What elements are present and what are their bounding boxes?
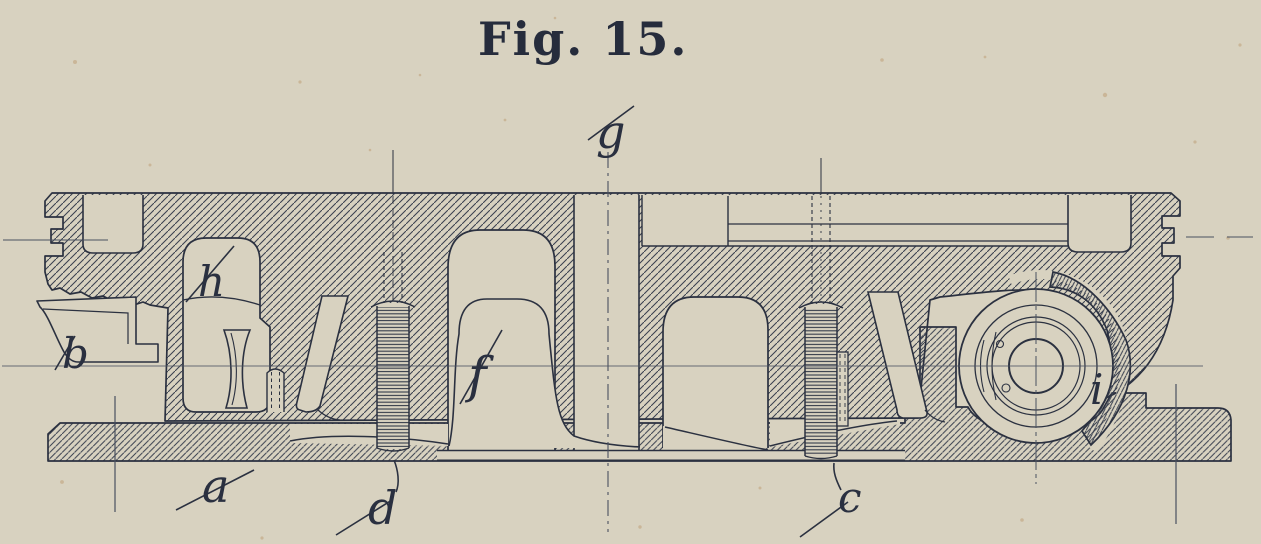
part-label-d: d [368, 481, 397, 535]
part-label-i: i [1090, 365, 1103, 414]
left-top-notch [83, 195, 143, 253]
h-cavity [183, 238, 270, 412]
bearing-assembly [959, 272, 1130, 450]
figure-title: Fig. 15. [478, 12, 688, 66]
gib-strip-band [642, 195, 1068, 246]
b-gib-piece [37, 297, 158, 362]
scanned-figure-page: Fig. 15. g h b f a d c i [0, 0, 1261, 544]
slot-g [574, 195, 639, 452]
right-portal [663, 297, 768, 448]
right-top-notch [1068, 195, 1131, 252]
gib-slot [837, 352, 848, 426]
figure-15-drawing: Fig. 15. g h b f a d c i [0, 0, 1261, 544]
part-label-h: h [198, 257, 225, 306]
part-label-g: g [596, 105, 625, 159]
part-label-b: b [62, 329, 89, 378]
part-label-c: c [838, 473, 862, 522]
b-gib-outline [37, 297, 158, 362]
part-label-a: a [202, 459, 229, 513]
stud [267, 369, 284, 412]
